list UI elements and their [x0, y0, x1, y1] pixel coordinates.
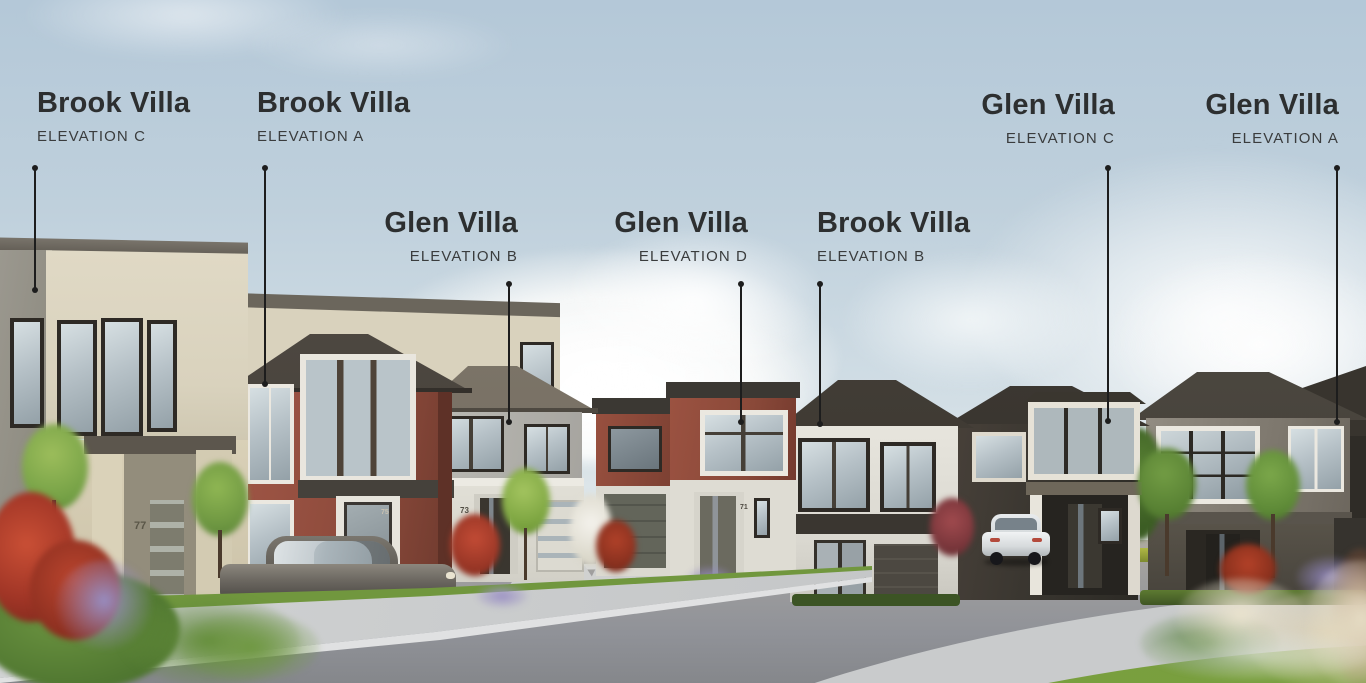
- leader-line: [1336, 168, 1338, 422]
- house-6-porch-band: [1026, 482, 1142, 495]
- house-6-bay-window: [1028, 402, 1140, 480]
- house-6-front-door: [1068, 504, 1102, 588]
- house-2-left-window: [246, 384, 294, 484]
- annotation-brook-villa-b: Brook Villa ELEVATION B: [817, 208, 1027, 265]
- leader-line: [264, 168, 266, 384]
- lavender: [476, 584, 528, 608]
- house-4-main-window: [700, 410, 788, 476]
- wheel: [1028, 552, 1041, 565]
- cloud: [840, 250, 1100, 390]
- house-4-garage-fascia: [592, 398, 672, 414]
- annotation-title: Brook Villa: [257, 88, 467, 120]
- leader-line: [508, 284, 510, 422]
- leader-line: [34, 168, 36, 290]
- annotation-subtitle: ELEVATION A: [257, 128, 467, 145]
- shrub-red: [596, 520, 636, 572]
- house-5-left-windows: [798, 438, 870, 512]
- streetscape-rendering: 71 73 75 77: [0, 0, 1366, 683]
- cloud: [240, 10, 520, 80]
- suv-glass: [995, 518, 1037, 530]
- shrub-red: [930, 498, 974, 556]
- house-number: 75: [381, 509, 389, 516]
- house-1-front-window: [57, 320, 97, 436]
- lavender: [56, 560, 152, 650]
- suv-car: [982, 514, 1050, 566]
- house-1-side-window: [10, 318, 44, 428]
- house-4-slit-window: [754, 498, 770, 538]
- sedan-headlight: [446, 572, 455, 579]
- house-6-side-window: [1098, 508, 1122, 544]
- annotation-glen-villa-d: Glen Villa ELEVATION D: [538, 208, 748, 265]
- house-6-porch-column: [1128, 495, 1140, 595]
- annotation-subtitle: ELEVATION D: [538, 248, 748, 265]
- house-1-front-window: [101, 318, 143, 436]
- house-6-left-window: [972, 432, 1026, 482]
- house-2-bay-window: [300, 354, 416, 482]
- annotation-subtitle: ELEVATION B: [817, 248, 1027, 265]
- suv-taillight: [990, 538, 1000, 542]
- annotation-glen-villa-a: Glen Villa ELEVATION A: [1129, 90, 1339, 147]
- house-4-front-door: [700, 496, 736, 576]
- grass-clump: [180, 612, 320, 682]
- annotation-brook-villa-c: Brook Villa ELEVATION C: [37, 88, 247, 145]
- wheel: [990, 552, 1003, 565]
- house-4-garage-window: [608, 426, 662, 472]
- leader-line: [819, 284, 821, 424]
- annotation-subtitle: ELEVATION A: [1129, 130, 1339, 147]
- annotation-title: Glen Villa: [308, 208, 518, 240]
- annotation-brook-villa-a: Brook Villa ELEVATION A: [257, 88, 467, 145]
- shrub-red: [450, 514, 500, 576]
- annotation-title: Glen Villa: [1129, 90, 1339, 122]
- annotation-title: Glen Villa: [905, 90, 1115, 122]
- house-number: 77: [134, 520, 146, 532]
- annotation-glen-villa-c: Glen Villa ELEVATION C: [905, 90, 1115, 147]
- annotation-glen-villa-b: Glen Villa ELEVATION B: [308, 208, 518, 265]
- house-number: 71: [740, 504, 748, 511]
- annotation-title: Glen Villa: [538, 208, 748, 240]
- leader-line: [740, 284, 742, 422]
- annotation-subtitle: ELEVATION B: [308, 248, 518, 265]
- house-5-right-window: [880, 442, 936, 512]
- hedge: [792, 594, 960, 606]
- flower-bed-white: [1150, 630, 1366, 680]
- annotation-subtitle: ELEVATION C: [37, 128, 247, 145]
- annotation-title: Brook Villa: [37, 88, 247, 120]
- house-4-main-fascia: [666, 382, 800, 398]
- annotation-title: Brook Villa: [817, 208, 1027, 240]
- house-3-right-window: [524, 424, 570, 474]
- leader-line: [1107, 168, 1109, 421]
- house-number: 73: [460, 506, 469, 515]
- annotation-subtitle: ELEVATION C: [905, 130, 1115, 147]
- house-1-front-window: [147, 320, 177, 432]
- suv-taillight: [1032, 538, 1042, 542]
- house-5-garage-door: [874, 544, 938, 600]
